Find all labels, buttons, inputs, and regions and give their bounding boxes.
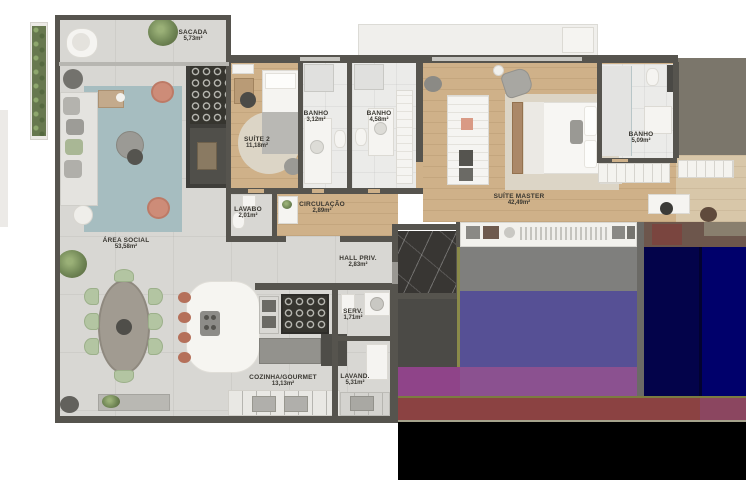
- room-area: 3,12m²: [304, 117, 329, 124]
- room-area: 11,18m²: [244, 143, 270, 150]
- sofa-cushion-2: [66, 119, 84, 135]
- master-side-table: [493, 65, 504, 76]
- planter-greens: [32, 26, 46, 136]
- glitch-black-block: [398, 422, 746, 480]
- dining-chair: [84, 313, 99, 330]
- wall-banho-master-right: [673, 62, 679, 158]
- makeup-chair: [660, 202, 673, 215]
- sliding-door-sacada: [59, 62, 229, 66]
- terracotta-pouf-1: [151, 81, 174, 103]
- tv-unit-shelf: [197, 142, 217, 170]
- master-bed-bench: [512, 102, 523, 174]
- room-label-banho-master: BANHO 5,09m²: [629, 131, 654, 145]
- room-area: 2,89m²: [299, 208, 345, 215]
- dining-chair: [84, 288, 99, 305]
- balcony-plant: [148, 18, 178, 46]
- sofa-cushion-3: [64, 160, 82, 178]
- glitch-olive-line-vertical: [457, 247, 460, 367]
- window-top-1: [300, 57, 340, 61]
- room-label-area-social: ÁREA SOCIAL 53,58m²: [103, 237, 150, 251]
- door-banho2: [368, 189, 380, 193]
- room-label-lavand: LAVAND. 5,31m²: [340, 373, 369, 387]
- wall-marble-top: [392, 224, 462, 230]
- master-pouf-gray: [424, 76, 442, 92]
- glitch-maroon-band-right: [700, 398, 746, 420]
- dining-chair: [148, 288, 163, 305]
- dining-chair: [84, 338, 99, 355]
- wall-left: [55, 15, 60, 423]
- cooktop-burner: [204, 325, 209, 330]
- wall-serv-lavand: [335, 336, 392, 341]
- room-label-suite-2: SUÍTE 2 11,18m²: [244, 136, 270, 150]
- dining-chair: [114, 269, 134, 282]
- kitchen-sink-1: [252, 396, 276, 412]
- room-label-banho-social: BANHO 4,58m²: [367, 110, 392, 124]
- wall-bottom: [55, 416, 398, 423]
- door-hall-entry: [392, 262, 398, 284]
- glitch-purple-block: [460, 291, 637, 367]
- cooktop-burner: [211, 315, 216, 320]
- kitchen-cabinet: [259, 338, 321, 364]
- wall-banho-banho: [347, 62, 352, 190]
- wall-sacada-top: [55, 15, 231, 20]
- dining-chair: [148, 338, 163, 355]
- wall-banho-master-bottom: [597, 158, 677, 163]
- banho-master-vanity: [644, 106, 672, 134]
- room-area: 13,13m²: [249, 381, 317, 388]
- cooktop-burner: [211, 325, 216, 330]
- wall-kitchen-top: [255, 283, 398, 290]
- floor-marble-hall: [398, 231, 456, 293]
- room-label-hall-priv: HALL PRIV. 2,83m²: [339, 255, 376, 269]
- pantry-wine-rack: [281, 294, 329, 334]
- wall-banho-master-left: [597, 62, 602, 160]
- counter-item-5: [627, 226, 635, 239]
- dining-chair: [114, 370, 134, 383]
- glitch-navy-block-2: [702, 247, 746, 400]
- hall-cabinet-plant: [282, 200, 292, 209]
- glitch-magenta-block-left: [398, 367, 460, 397]
- dining-chair: [148, 313, 163, 330]
- wall-circulacao-hall: [340, 236, 398, 242]
- master-pillow-1: [584, 106, 597, 136]
- wall-lavabo-left: [226, 194, 231, 238]
- room-area: 1,71m²: [343, 315, 363, 322]
- window-top-2: [432, 57, 582, 61]
- banho1-sink: [310, 140, 324, 154]
- room-area: 5,31m²: [340, 380, 369, 387]
- banho1-toilet: [334, 130, 346, 148]
- room-label-lavabo: LAVABO 2,01m²: [234, 206, 262, 220]
- microwave: [262, 316, 276, 328]
- glitch-navy-block-1: [644, 247, 701, 400]
- wall-lavand-right: [390, 285, 398, 418]
- console-vase: [116, 93, 125, 102]
- room-label-serv: SERV. 1,71m²: [343, 308, 363, 322]
- dressing-pouf: [700, 207, 717, 222]
- room-label-suite-master: SUÍTE MASTER 42,49m²: [494, 193, 545, 207]
- suite2-nightstand: [232, 64, 254, 74]
- door-banho-master: [612, 159, 628, 162]
- island-stool: [178, 332, 191, 343]
- edge-strip: [0, 110, 8, 227]
- master-throw-pillow: [570, 120, 583, 144]
- living-plant: [57, 250, 87, 278]
- glitch-wall-strip: [637, 222, 644, 400]
- banho2-shower: [354, 64, 384, 90]
- door-suite2: [248, 189, 264, 193]
- island-cooktop: [200, 311, 220, 336]
- room-area: 2,01m²: [234, 213, 262, 220]
- room-label-sacada: SACADA 5,73m²: [178, 29, 207, 43]
- wine-rack: [190, 66, 226, 124]
- glitch-tan-square: [704, 222, 746, 236]
- dining-centerpiece: [116, 319, 132, 335]
- kitchen-sink-2: [284, 396, 308, 412]
- shoe-shelf-1: [598, 163, 670, 183]
- wall-lavabo-right: [272, 194, 277, 238]
- glitch-maroon-band: [398, 398, 746, 420]
- closet-item-dark-2: [459, 168, 473, 181]
- room-area: 2,83m²: [339, 262, 376, 269]
- wall-suite2-banho: [298, 62, 303, 190]
- room-label-banho-suite-2: BANHO 3,12m²: [304, 110, 329, 124]
- room-label-circulacao: CIRCULAÇÃO 2,89m²: [299, 201, 345, 215]
- glitch-maroon-square: [652, 224, 682, 245]
- suite2-pillow: [265, 73, 296, 89]
- coffee-table-small: [127, 149, 143, 165]
- closet-item-dark-1: [459, 150, 473, 166]
- floor-plan: SACADA 5,73m² ÁREA SOCIAL 53,58m² SUÍTE …: [0, 0, 746, 480]
- counter-item-2: [483, 226, 499, 239]
- counter-item-3: [504, 227, 515, 238]
- floor-hall-priv: [277, 236, 398, 285]
- wall-serv-left: [332, 290, 338, 416]
- sofa-cushion-green: [65, 139, 83, 155]
- floor-service-shaft: [396, 299, 458, 367]
- ac-unit: [562, 27, 594, 53]
- glitch-gray-block: [460, 247, 637, 291]
- cooktop-burner: [204, 315, 209, 320]
- door-master-entry: [416, 162, 423, 188]
- island-stool: [178, 312, 191, 323]
- balcony-armchair-cushion: [72, 33, 90, 51]
- master-bed-duvet-fold: [524, 102, 544, 174]
- block-neighbor-area: [678, 58, 746, 155]
- room-area: 53,58m²: [103, 244, 150, 251]
- island-stool: [178, 292, 191, 303]
- banho-master-toilet: [646, 68, 659, 86]
- kitchen-island: [186, 281, 260, 373]
- door-banho1: [312, 189, 324, 193]
- master-pillow-2: [584, 140, 597, 168]
- washer-door: [370, 297, 384, 311]
- closet-item-terracotta: [461, 118, 473, 130]
- room-area: 4,58m²: [367, 117, 392, 124]
- floor-lamp: [73, 205, 93, 225]
- wall-lavabo-bottom: [226, 236, 286, 242]
- counter-item-1: [466, 226, 480, 239]
- banho2-toilet: [355, 128, 367, 146]
- lavand-sink: [350, 396, 374, 411]
- room-area: 42,49m²: [494, 200, 545, 207]
- sofa-cushion-1: [63, 97, 80, 115]
- terracotta-pouf-2: [147, 197, 170, 219]
- stool-dark: [60, 396, 79, 413]
- suite2-desk-chair: [240, 92, 256, 108]
- banho1-shower: [304, 64, 334, 92]
- sideboard-plant: [102, 395, 120, 408]
- island-stool: [178, 352, 191, 363]
- banho-master-shower: [602, 66, 632, 156]
- wall-suite2-left: [226, 62, 231, 190]
- room-label-cozinha-gourmet: COZINHA/GOURMET 13,13m²: [249, 374, 317, 388]
- counter-item-4: [612, 226, 625, 239]
- room-area: 5,73m²: [178, 36, 207, 43]
- counter-plate-rack: [520, 227, 608, 240]
- banho2-shelf-column: [396, 90, 413, 184]
- shoe-shelf-2: [678, 160, 734, 178]
- side-table-round: [63, 69, 83, 89]
- oven: [262, 300, 276, 312]
- room-area: 5,09m²: [629, 138, 654, 145]
- glitch-magenta-block: [460, 367, 638, 397]
- wall-marble-bottom: [392, 293, 458, 299]
